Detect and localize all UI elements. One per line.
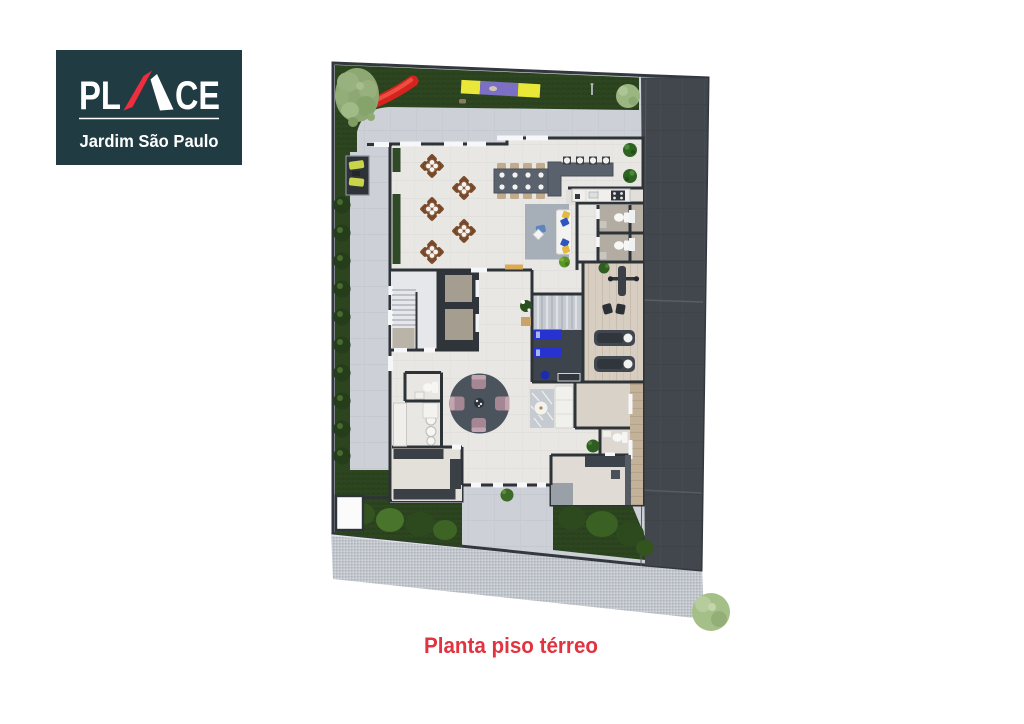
- svg-text:CE: CE: [175, 74, 220, 118]
- svg-text:PL: PL: [79, 74, 121, 118]
- svg-text:Jardim São Paulo: Jardim São Paulo: [80, 131, 219, 151]
- svg-text:Planta piso térreo: Planta piso térreo: [424, 633, 598, 658]
